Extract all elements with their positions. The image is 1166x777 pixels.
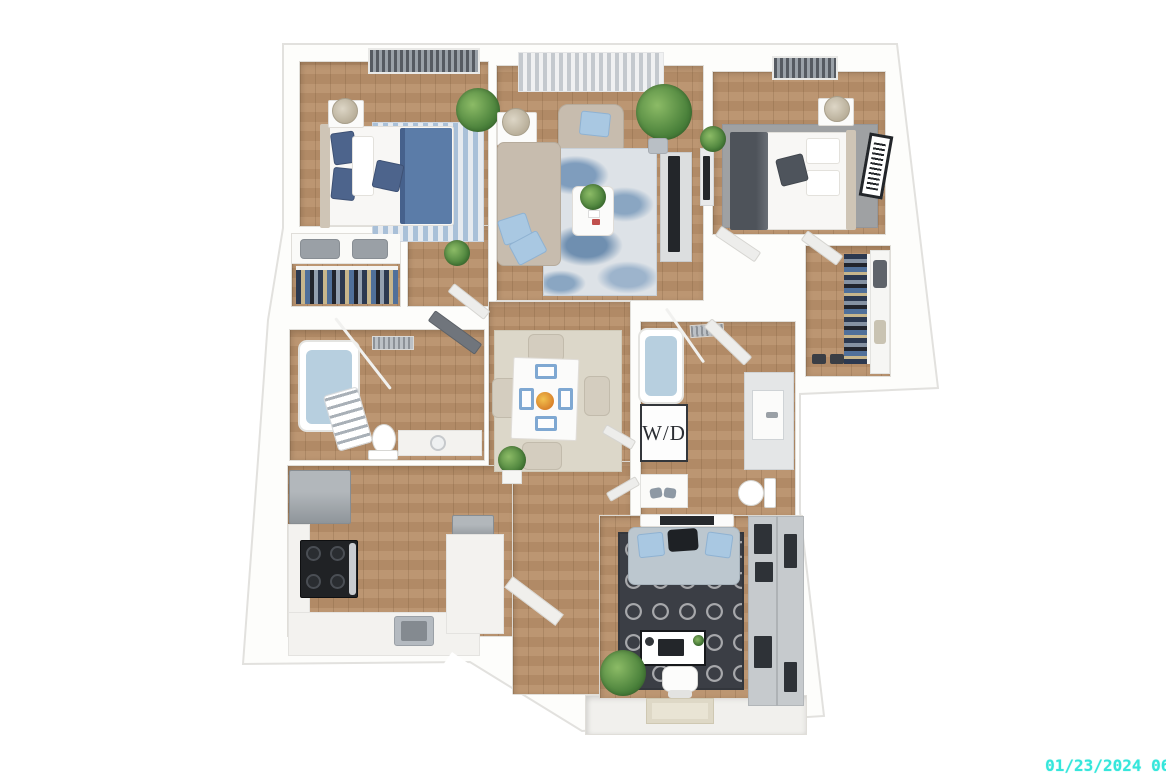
plant-stand (502, 470, 522, 484)
storage-bin (300, 239, 340, 259)
toilet-tank (764, 478, 776, 508)
living-window-blinds (518, 52, 664, 92)
kitchen-island (446, 534, 504, 634)
dining-chair (584, 376, 610, 416)
handheld-vacuum (873, 260, 887, 288)
slippers (663, 487, 676, 499)
throw-blanket-dark (667, 528, 698, 552)
vanity-sink (430, 435, 446, 451)
placemat (519, 388, 534, 410)
shoes (830, 354, 844, 364)
placemat (558, 388, 573, 410)
bedroom2-throw-blanket (730, 132, 768, 230)
palm-plant (636, 84, 692, 140)
stove-burner (306, 574, 321, 589)
bedroom2-ceiling-vent (772, 56, 838, 80)
bathroom2-toilet (738, 480, 764, 506)
potted-plant (600, 650, 646, 696)
stove-burner (306, 546, 321, 561)
console-runner (660, 516, 714, 525)
pillow (371, 159, 404, 192)
plant-pot (648, 138, 668, 154)
cabinet-shelf-opening (784, 662, 797, 692)
storage-bin (352, 239, 388, 259)
coffee-table-tray (588, 210, 600, 218)
desk-plant (693, 635, 704, 646)
cabinet-shelf-opening (754, 636, 772, 668)
living-lamp (502, 108, 530, 136)
bedroom1-window-blinds (368, 48, 480, 74)
bedroom2-lamp (824, 96, 850, 122)
coffee-table-book (592, 219, 600, 225)
stove-burner (330, 546, 345, 561)
office-chair (662, 666, 698, 692)
living-tv (668, 156, 680, 252)
ironing-board (874, 320, 886, 344)
bedroom2-tv (703, 156, 710, 200)
cabinet-shelf-opening (754, 524, 772, 554)
cabinet-shelf-opening (784, 534, 797, 568)
desk-lamp (645, 637, 654, 646)
pillow (806, 170, 840, 196)
toilet-tank (368, 450, 398, 460)
potted-plant (456, 88, 500, 132)
bedroom1-headboard (320, 124, 330, 228)
cabinet-shelf-opening (755, 562, 773, 582)
closet1-hanging-clothes (296, 266, 398, 304)
pillow (579, 110, 611, 137)
bedroom1-throw-blanket (400, 128, 452, 224)
refrigerator (289, 470, 351, 524)
coffee-table-plant (580, 184, 606, 210)
office-chair-base (668, 690, 692, 698)
timestamp-watermark: 01/23/2024 06: (1045, 756, 1166, 775)
sink-basin (401, 621, 427, 641)
bedroom1-lamp (332, 98, 358, 124)
oven-handle (349, 543, 356, 595)
potted-plant (444, 240, 470, 266)
placemat (535, 364, 557, 379)
fruit-bowl (536, 392, 554, 410)
shoes (812, 354, 826, 364)
potted-plant (700, 126, 726, 152)
dining-chair (522, 442, 562, 470)
faucet (766, 412, 778, 418)
placemat (535, 416, 557, 431)
washer-dryer-unit: W/D (640, 404, 688, 462)
pillow (637, 532, 665, 559)
bedroom2-headboard (846, 130, 856, 230)
pillow (704, 531, 733, 558)
floorplan-canvas: W/D 01/23/2024 06: (0, 0, 1166, 777)
pillow (806, 138, 840, 164)
cabinet-divider (776, 516, 778, 706)
bathtub-water (645, 336, 677, 396)
doormat-inner (652, 703, 708, 719)
pillow (352, 136, 374, 196)
laptop (658, 639, 684, 656)
walkin-hanging-clothes (844, 254, 870, 364)
stove-burner (330, 574, 345, 589)
floor-vent (372, 336, 414, 350)
